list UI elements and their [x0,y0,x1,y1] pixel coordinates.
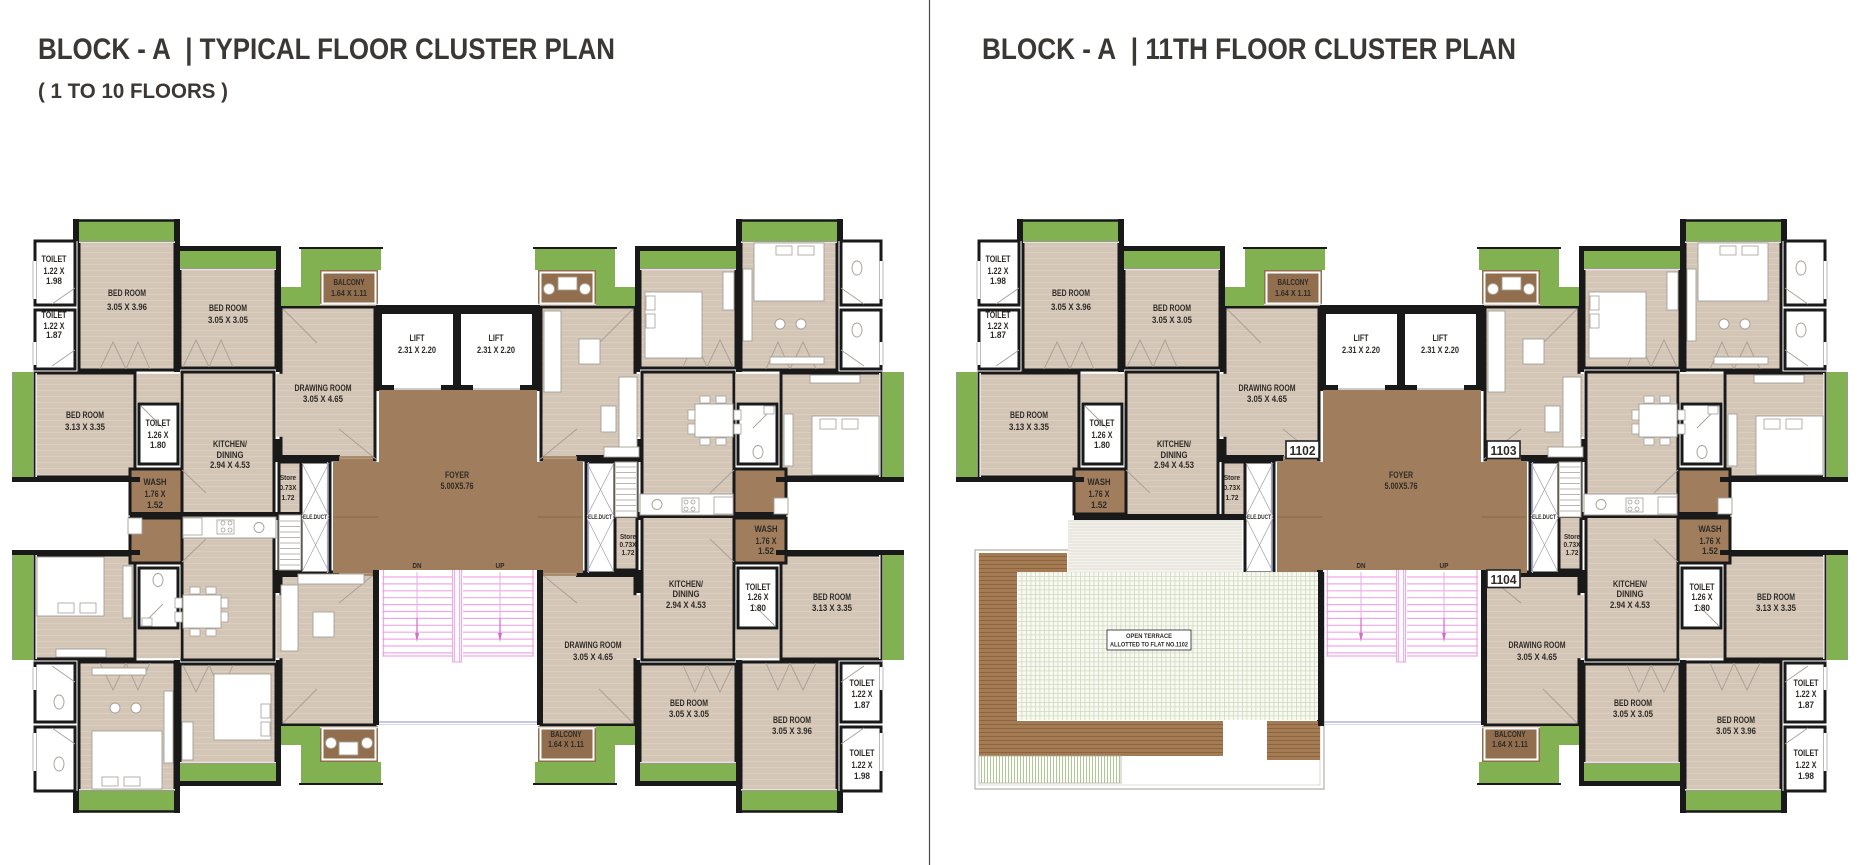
svg-text:ALLOTTED TO FLAT NO.1102: ALLOTTED TO FLAT NO.1102 [1110,642,1188,649]
svg-text:OPEN TERRACE: OPEN TERRACE [1126,633,1173,640]
svg-text:( 1 TO 10 FLOORS ): ( 1 TO 10 FLOORS ) [38,79,228,103]
svg-text:1104: 1104 [1491,572,1518,587]
svg-text:1102: 1102 [1290,443,1316,458]
svg-text:1103: 1103 [1491,443,1517,458]
svg-text:BLOCK - A | 11TH FLOOR CLUSTE: BLOCK - A | 11TH FLOOR CLUSTER PLAN [982,33,1516,66]
svg-text:BLOCK - A | TYPICAL FLOOR CLU: BLOCK - A | TYPICAL FLOOR CLUSTER PLAN [38,33,615,66]
